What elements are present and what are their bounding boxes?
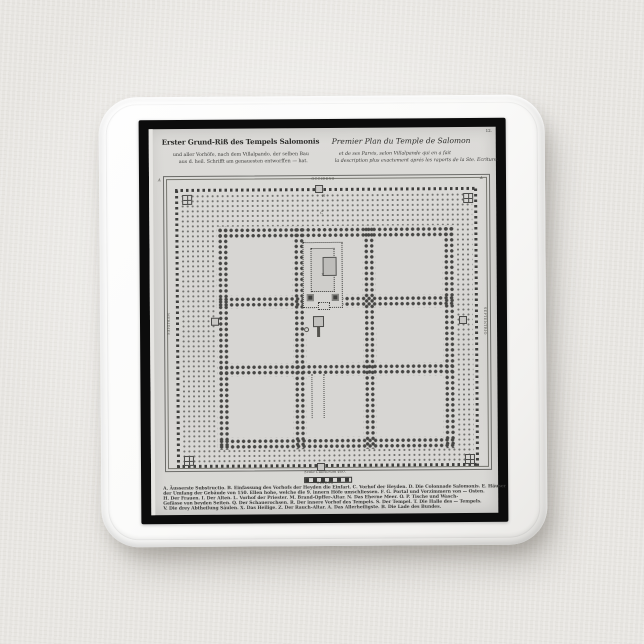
compass-label-septentrio: SEPTENTRIO <box>483 307 487 335</box>
corner-tower <box>463 193 473 203</box>
corner-tower <box>465 454 475 464</box>
plan-letter: C <box>314 440 317 444</box>
plan-letter: A <box>158 178 161 182</box>
product-photo-background: 12. Erster Grund-Riß des Tempels Salomon… <box>0 0 644 644</box>
inner-temple-complex: X <box>216 225 456 450</box>
temple-porch <box>318 302 330 310</box>
french-title-line-3: la description plus exactement aprés les… <box>335 157 499 164</box>
colonnade-band <box>362 226 377 449</box>
holy-of-holies <box>323 257 337 276</box>
square-pin-button: 12. Erster Grund-Riß des Tempels Salomon… <box>98 94 547 547</box>
french-title-line-2: et de ses Parvis, selon Villalpande qui … <box>339 150 451 156</box>
temple-pillar-right <box>332 294 339 301</box>
temple-inner-court: X <box>310 248 334 292</box>
german-title-line-3: aus d. heil. Schrifft am genauesten entw… <box>179 158 308 164</box>
colonnade-band <box>218 436 456 450</box>
corner-tower <box>182 195 192 205</box>
laver-mark <box>304 327 309 332</box>
colonnade-band <box>216 227 230 450</box>
page-number: 12. <box>485 129 491 134</box>
corner-tower <box>184 456 194 466</box>
paper-scan-edge <box>149 129 156 515</box>
gate-marker <box>211 318 219 326</box>
engraving-paper: 12. Erster Grund-Riß des Tempels Salomon… <box>149 127 499 515</box>
legend-block: A. Äusserste Substructio. B. Einfassung … <box>163 484 493 511</box>
compass-label-meridies: MERIDIES <box>166 313 170 335</box>
legend-line: V. Die drey Abtheilung Säulen. X. Das He… <box>163 504 493 511</box>
gate-marker <box>459 316 467 324</box>
german-title-line-1: Erster Grund-Riß des Tempels Salomonis <box>162 137 320 147</box>
scale-caption: Scala Cubitorum 400. <box>304 470 346 474</box>
plan-letter: D <box>394 232 397 236</box>
temple-mark: X <box>321 273 324 277</box>
colonnade-band <box>216 225 454 239</box>
printed-artwork-frame: 12. Erster Grund-Riß des Tempels Salomon… <box>139 118 509 525</box>
colonnade-band <box>442 225 456 448</box>
temple-pillar-left <box>307 294 314 301</box>
plan-letter: B <box>322 194 325 198</box>
plan-letter: A <box>480 176 483 180</box>
altar-ramp <box>317 326 320 337</box>
gate-marker <box>315 185 323 193</box>
colonnade-band <box>217 362 455 377</box>
german-title-line-2: und aller Vorhöfe, nach dem Villalpando,… <box>173 151 309 157</box>
temple-building: X <box>302 242 342 308</box>
east-passage <box>311 374 324 418</box>
french-title-line-1: Premier Plan du Temple de Salomon <box>332 136 471 146</box>
plan-letter: C <box>320 211 323 215</box>
compass-label-occidens: OCCIDENS <box>311 177 334 181</box>
